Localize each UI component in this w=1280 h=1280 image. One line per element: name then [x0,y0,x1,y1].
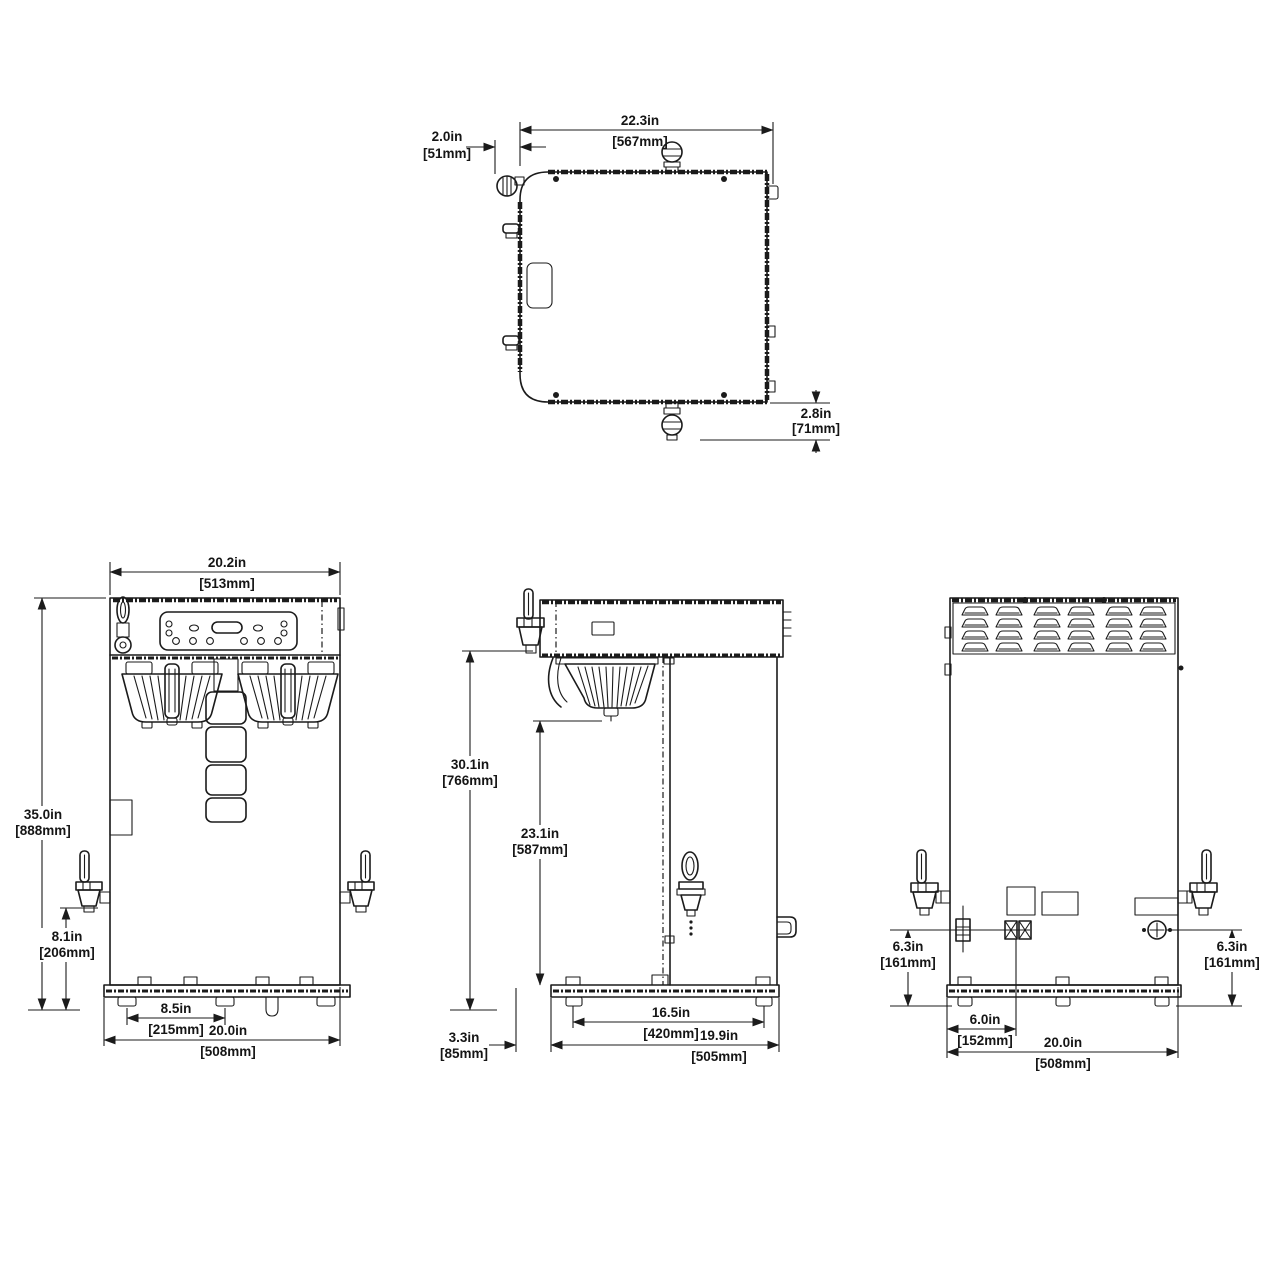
dim-side-depth-in: 19.9in [700,1028,738,1043]
side-tower [663,657,777,985]
dim-front-height-mm: [888mm] [15,823,71,838]
front-label-plate [110,800,132,835]
side-handle[interactable] [777,917,796,937]
top-faucet-bonnet-bottom [662,403,682,440]
dim-side-depth-mm: [505mm] [691,1049,747,1064]
dim-front-legs-mm: [215mm] [148,1022,204,1037]
front-right-faucet[interactable] [340,851,374,912]
dim-rear-offset-mm: [152mm] [957,1033,1013,1048]
rear-base [947,977,1181,1006]
dim-rear-right-mm: [161mm] [1204,955,1260,970]
dim-rear-base-mm: [508mm] [1035,1056,1091,1071]
rear-left-faucet[interactable] [911,850,950,915]
panel-button[interactable] [281,630,287,636]
side-slot [592,622,614,635]
panel-button[interactable] [281,621,287,627]
spec-sheet-page: 22.3in [567mm] 2.0in [51mm] 2.8in [71mm] [0,0,1280,1280]
rear-label-plate-2 [1042,892,1078,915]
dim-side-brew-in: 30.1in [451,757,489,772]
dim-front-width-mm: [513mm] [199,576,255,591]
front-left-faucet[interactable] [76,851,110,912]
rear-label-plate-3 [1135,898,1178,915]
dim-top-rear-mm: [71mm] [792,421,840,436]
rear-inlet-valve [956,906,970,952]
panel-button[interactable] [190,638,197,645]
front-body [110,598,340,985]
dim-rear-left-mm: [161mm] [880,955,936,970]
dim-front-faucet-mm: [206mm] [39,945,95,960]
front-hot-water-faucet[interactable] [115,597,131,653]
dim-front-height-in: 35.0in [24,807,62,822]
side-funnel [549,658,658,721]
side-view: 30.1in [766mm] 23.1in [587mm] 3.3in [85m… [440,589,796,1064]
panel-button[interactable] [275,638,282,645]
dim-front-base-in: 20.0in [209,1023,247,1038]
side-tower-faucet[interactable] [677,852,705,936]
dim-side-overhang-mm: [85mm] [440,1046,488,1061]
dim-side-clear-in: 23.1in [521,826,559,841]
dim-top-rear-in: 2.8in [801,406,832,421]
vent-panel [953,603,1175,654]
dim-side-legs-mm: [420mm] [643,1026,699,1041]
dim-front-base-mm: [508mm] [200,1044,256,1059]
panel-button[interactable] [207,638,214,645]
rear-right-faucet[interactable] [1178,850,1217,915]
side-housing [540,600,783,657]
panel-button[interactable] [254,625,263,631]
front-base [104,977,350,1016]
dim-rear-offset-in: 6.0in [970,1012,1001,1027]
technical-drawing: 22.3in [567mm] 2.0in [51mm] 2.8in [71mm] [0,0,1280,1280]
dim-rear-right-in: 6.3in [1217,939,1248,954]
dim-front-legs-in: 8.5in [161,1001,192,1016]
top-view-body [520,172,767,402]
dim-rear-base-in: 20.0in [1044,1035,1082,1050]
side-base [551,975,779,1006]
panel-button[interactable] [166,630,172,636]
dim-top-offset-mm: [51mm] [423,146,471,161]
top-side-fittings [503,224,519,350]
panel-button[interactable] [173,638,180,645]
dim-side-clear-mm: [587mm] [512,842,568,857]
brew-funnel-right [238,662,338,728]
top-label-plate [527,263,552,308]
panel-button[interactable] [166,621,172,627]
dim-front-faucet-in: 8.1in [52,929,83,944]
dim-top-width-in: 22.3in [621,113,659,128]
dim-front-width-in: 20.2in [208,555,246,570]
top-view: 22.3in [567mm] 2.0in [51mm] 2.8in [71mm] [423,113,840,453]
front-view: 20.2in [513mm] 35.0in [888mm] 8.1in [206… [15,555,374,1059]
dim-top-width-mm: [567mm] [612,134,668,149]
dim-top-offset-in: 2.0in [432,129,463,144]
control-panel [160,612,297,650]
rear-body [950,598,1178,985]
dim-side-brew-mm: [766mm] [442,773,498,788]
dim-side-legs-in: 16.5in [652,1005,690,1020]
dim-side-overhang-in: 3.3in [449,1030,480,1045]
rear-label-plate-1 [1007,887,1035,915]
panel-display [212,622,242,633]
drain-tube [266,997,278,1016]
panel-button[interactable] [241,638,248,645]
panel-button[interactable] [258,638,265,645]
rear-view: 6.3in [161mm] 6.3in [161mm] 6.0in [152mm… [880,597,1260,1071]
dim-rear-left-in: 6.3in [893,939,924,954]
panel-button[interactable] [190,625,199,631]
